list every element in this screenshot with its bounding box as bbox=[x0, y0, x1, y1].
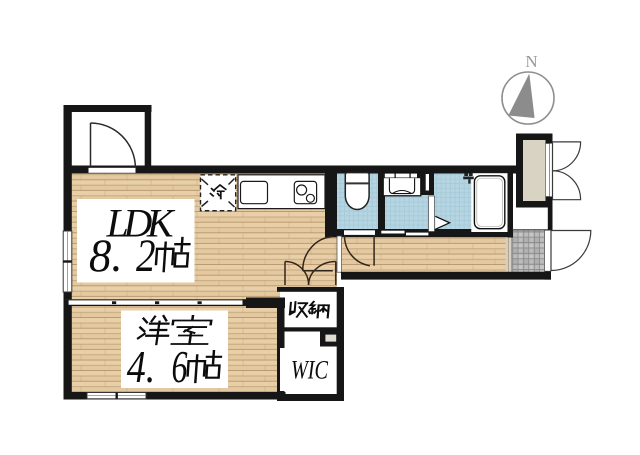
svg-text:N: N bbox=[525, 52, 537, 71]
svg-text:WIC: WIC bbox=[291, 355, 329, 384]
svg-text:4.: 4. bbox=[127, 342, 156, 392]
svg-text:6: 6 bbox=[172, 342, 188, 392]
svg-text:8.: 8. bbox=[89, 230, 123, 282]
svg-text:2: 2 bbox=[136, 230, 156, 282]
